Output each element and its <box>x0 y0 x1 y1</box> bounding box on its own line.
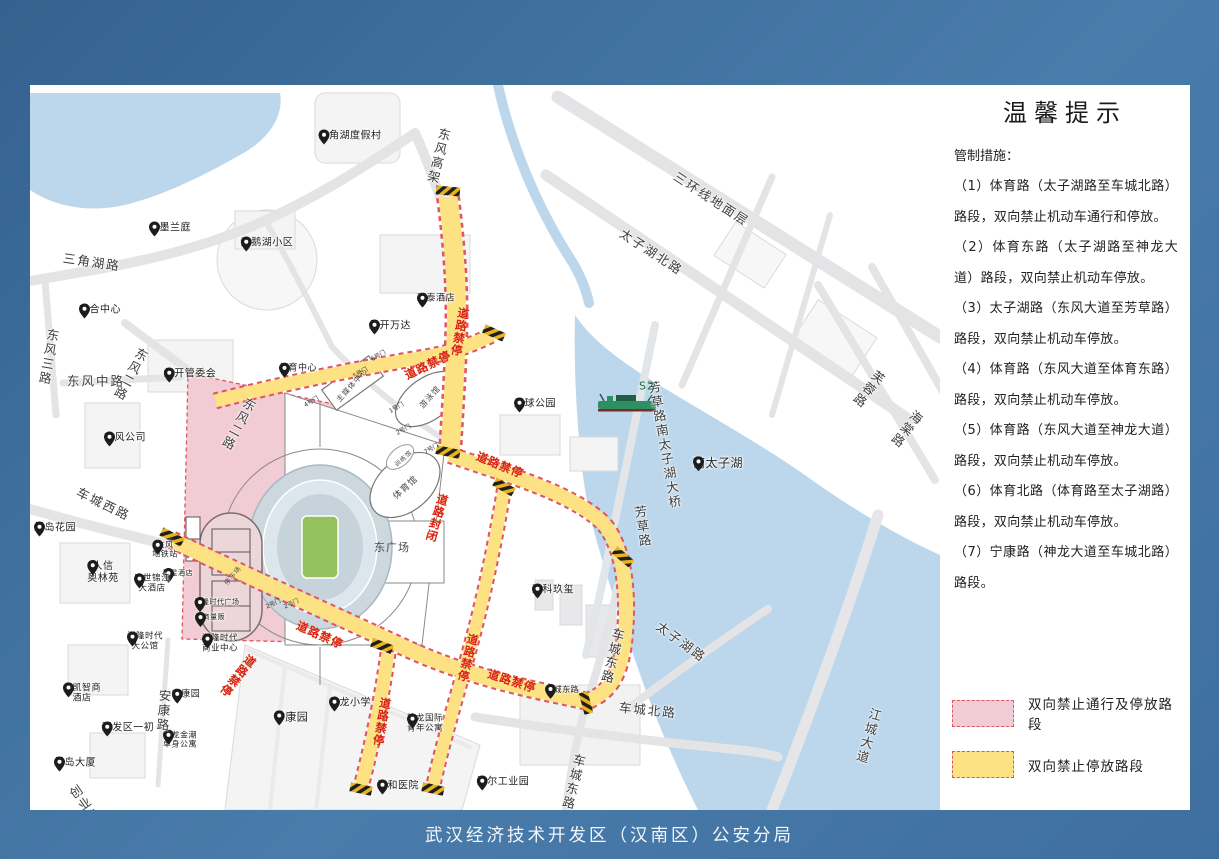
measure-item-5: （5）体育路（东风大道至神龙大道）路段，双向禁止机动车停放。 <box>954 416 1178 477</box>
measure-item-4: （4）体育路（东风大道至体育东路）路段，双向禁止机动车停放。 <box>954 355 1178 416</box>
notice-panel: 三角湖度假村水墨兰庭天鹅湖小区东合中心万泰酒店经开万达经开管委会东风公司体育中心… <box>30 85 1190 810</box>
legend-swatch-closed <box>952 700 1014 727</box>
notice-poster: { "footer": {"agency": "武汉经济技术开发区（汉南区）公安… <box>0 0 1219 859</box>
measure-item-2: （2）体育东路（太子湖路至神龙大道）路段，双向禁止机动车停放。 <box>954 233 1178 294</box>
map-legend: 双向禁止通行及停放路段 双向禁止停放路段 <box>952 693 1182 796</box>
measure-item-3: （3）太子湖路（东风大道至芳草路）路段，双向禁止机动车停放。 <box>954 294 1178 355</box>
map-base-svg <box>30 85 940 810</box>
legend-label-no-parking: 双向禁止停放路段 <box>1028 755 1144 775</box>
notice-body: 管制措施： （1）体育路（太子湖路至车城北路）路段，双向禁止机动车通行和停放。 … <box>954 142 1178 599</box>
legend-row-no-parking: 双向禁止停放路段 <box>952 751 1182 778</box>
measure-item-7: （7）宁康路（神龙大道至车城北路）路段。 <box>954 538 1178 599</box>
traffic-control-map: 三角湖度假村水墨兰庭天鹅湖小区东合中心万泰酒店经开万达经开管委会东风公司体育中心… <box>30 85 940 810</box>
legend-row-closed: 双向禁止通行及停放路段 <box>952 693 1182 733</box>
measures-intro: 管制措施： <box>954 142 1178 172</box>
info-panel: 温馨提示 管制措施： （1）体育路（太子湖路至车城北路）路段，双向禁止机动车通行… <box>940 85 1190 810</box>
measure-item-1: （1）体育路（太子湖路至车城北路）路段，双向禁止机动车通行和停放。 <box>954 172 1178 233</box>
legend-label-closed: 双向禁止通行及停放路段 <box>1028 693 1182 733</box>
measure-item-6: （6）体育北路（体育路至太子湖路）路段，双向禁止机动车停放。 <box>954 477 1178 538</box>
agency-name: 武汉经济技术开发区（汉南区）公安分局 <box>425 822 794 847</box>
footer-band: 武汉经济技术开发区（汉南区）公安分局 <box>0 810 1219 859</box>
legend-swatch-no-parking <box>952 751 1014 778</box>
water-bodies <box>30 85 940 810</box>
notice-title: 温馨提示 <box>940 93 1190 128</box>
